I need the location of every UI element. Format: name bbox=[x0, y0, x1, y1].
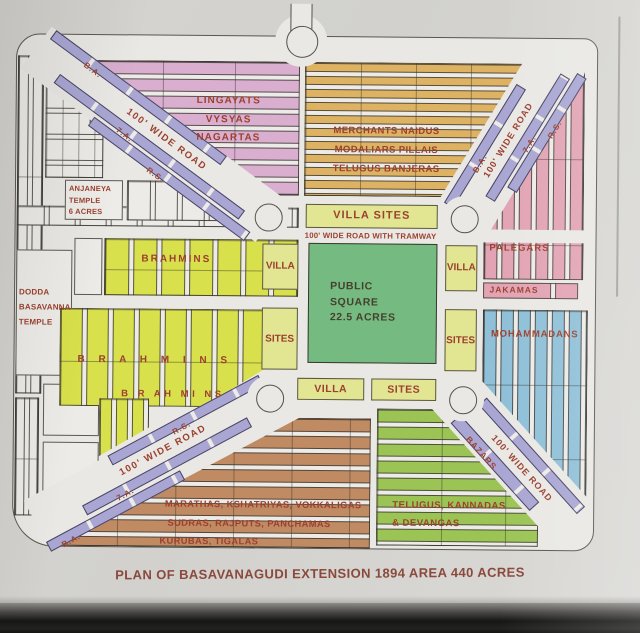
label-marathas-line2: SUDRAS, RAJPUTS, PANCHAMAS bbox=[163, 518, 335, 530]
label-telugus-line1: TELUGUS, KANNADAS bbox=[392, 500, 506, 512]
roundabout-top bbox=[286, 26, 318, 58]
label-lingayats: LINGAYATS VYSYAS NAGARTAS bbox=[163, 92, 293, 149]
square-line1: PUBLIC bbox=[330, 279, 396, 295]
photo-bottom-dark-band bbox=[0, 603, 640, 633]
label-villa-sites: VILLA SITES bbox=[306, 209, 438, 222]
label-jakamas: JAKAMAS bbox=[485, 284, 543, 295]
anjaneya-line1: ANJANEYA bbox=[69, 183, 111, 195]
anjaneya-line2: TEMPLE bbox=[69, 194, 111, 206]
label-dodda-temple: DODDA BASAVANNA TEMPLE bbox=[19, 284, 71, 329]
label-marathas-line3: KURUBAS, TIGALAS bbox=[152, 536, 266, 547]
white-block-mid bbox=[74, 238, 102, 295]
label-villa-left: VILLA bbox=[262, 260, 298, 271]
anjaneya-line3: 6 ACRES bbox=[69, 206, 111, 218]
dodda-line2: BASAVANNA bbox=[19, 299, 71, 314]
merchants-line1: MERCHANTS NAIDUS bbox=[319, 121, 453, 141]
label-tramway-road: 100' WIDE ROAD WITH TRAMWAY bbox=[301, 231, 441, 241]
roundabout-nw bbox=[255, 203, 283, 231]
label-brahmins-mid: B R A H M I N S bbox=[77, 354, 232, 366]
label-brahmins-lower: B R AH MI NS bbox=[121, 388, 224, 400]
label-villa-bottom: VILLA bbox=[297, 383, 364, 396]
label-marathas-line1: MARATHAS, KSHATRIYAS, VOKKALIGAS bbox=[150, 499, 376, 511]
page-edge-line bbox=[616, 17, 620, 297]
label-public-square: PUBLIC SQUARE 22.5 ACRES bbox=[330, 279, 396, 326]
dodda-line3: TEMPLE bbox=[19, 314, 71, 329]
square-line3: 22.5 ACRES bbox=[330, 310, 396, 326]
label-sites-bottom: SITES bbox=[371, 383, 436, 396]
lingayats-line1: LINGAYATS bbox=[164, 92, 294, 112]
label-sites-left: SITES bbox=[262, 333, 298, 344]
merchants-line3: TELUGUS BANJERAS bbox=[319, 159, 453, 179]
label-mohammadans: MOHAMMADANS bbox=[488, 328, 582, 340]
roundabout-ne bbox=[451, 205, 479, 233]
lingayats-line2: VYSYAS bbox=[163, 110, 293, 130]
square-line2: SQUARE bbox=[330, 295, 396, 311]
label-anjaneya-temple: ANJANEYA TEMPLE 6 ACRES bbox=[69, 183, 111, 218]
label-villa-right: VILLA bbox=[445, 262, 477, 273]
road-right-tramway bbox=[481, 229, 587, 243]
roundabout-se bbox=[449, 386, 477, 414]
lingayats-line3: NAGARTAS bbox=[163, 129, 293, 149]
dodda-line1: DODDA bbox=[19, 284, 71, 299]
map-plan: B.A. 100' WIDE ROAD 7.A. R.S. B.A. 100' … bbox=[0, 0, 640, 607]
label-brahmins-upper: BRAHMINS bbox=[120, 253, 232, 265]
label-telugus-line2: & DEVANGAS bbox=[392, 518, 460, 530]
label-palegars: PALEGARS bbox=[487, 242, 551, 254]
roundabout-sw bbox=[256, 384, 284, 412]
label-sites-right: SITES bbox=[445, 335, 477, 346]
label-merchants: MERCHANTS NAIDUS MODALIARS PILLAIS TELUG… bbox=[319, 121, 453, 179]
merchants-line2: MODALIARS PILLAIS bbox=[319, 140, 453, 160]
